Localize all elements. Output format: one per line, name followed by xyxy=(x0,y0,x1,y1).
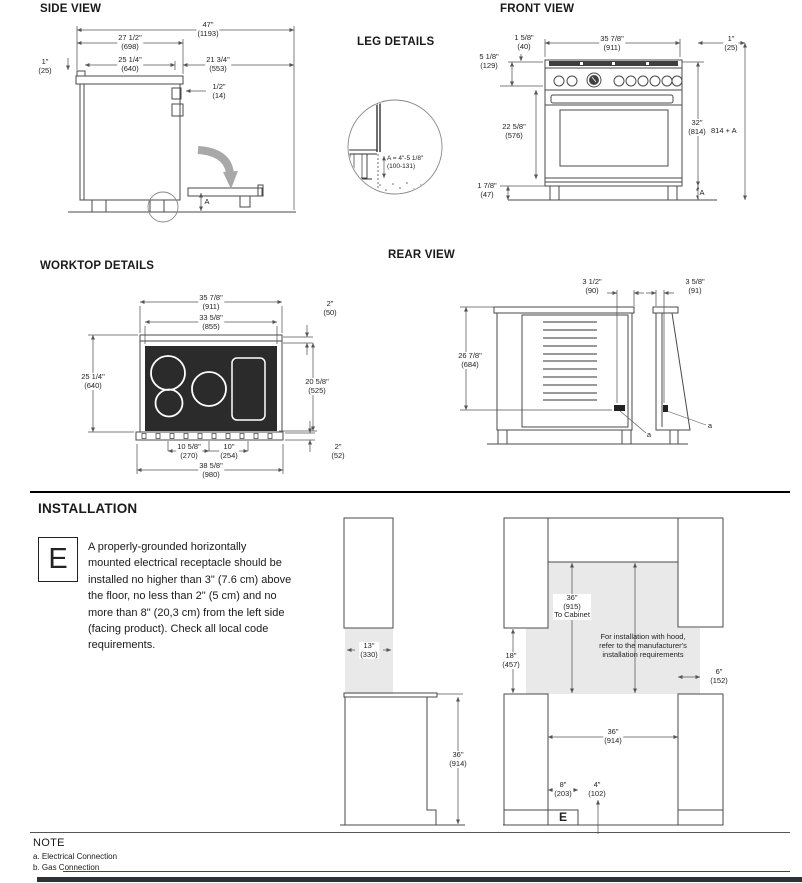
dim-worktop-depth: 25 1/4"(640) xyxy=(80,373,106,390)
dim-front-leg: 1 7/8"(47) xyxy=(476,182,497,199)
dim-depth-698: 27 1/2"(698) xyxy=(117,34,143,51)
door-swing-arrow xyxy=(198,150,230,174)
installation-text: A properly-grounded horizontally mounted… xyxy=(88,539,330,654)
connection-label-a-rear: a xyxy=(646,431,652,440)
hood-note: For installation with hood, refer to the… xyxy=(598,633,688,659)
vent-lines xyxy=(543,322,597,400)
height-plus-leg-label: 814 + A xyxy=(710,127,738,136)
dim-elec-90: 3 1/2"(90) xyxy=(581,278,602,295)
dim-burner-254: 10"(254) xyxy=(219,443,239,460)
spec-sheet: SIDE VIEW FRONT VIEW LEG DETAILS WORKTOP… xyxy=(0,0,802,883)
electrical-connection-box xyxy=(614,405,625,411)
dim-cabinet-330: 13"(330) xyxy=(359,642,379,659)
dim-worktop-911: 35 7/8"(911) xyxy=(198,294,224,311)
worktop-details-title: WORKTOP DETAILS xyxy=(40,260,154,272)
electrical-symbol-box: E xyxy=(38,537,78,582)
dim-outlet-203: 8"(203) xyxy=(553,781,573,798)
front-view-title: FRONT VIEW xyxy=(500,3,574,15)
rear-view-title: REAR VIEW xyxy=(388,249,455,261)
footer-bar xyxy=(37,877,802,882)
dim-side-offset: 1"(25) xyxy=(723,35,738,52)
left-clearance-shade xyxy=(345,628,393,694)
control-knobs xyxy=(554,73,682,87)
dim-depth-640: 25 1/4"(640) xyxy=(117,56,143,73)
rear-view-drawing xyxy=(450,275,800,450)
dim-opening-914: 36"(914) xyxy=(603,728,623,745)
side-view-title: SIDE VIEW xyxy=(40,3,101,15)
dim-counter-914: 36"(914) xyxy=(448,751,468,768)
dim-worktop-980: 38 5/8"(980) xyxy=(198,462,224,479)
dim-door-height: 22 5/8"(576) xyxy=(501,123,527,140)
dim-burner-270: 10 5/8"(270) xyxy=(176,443,202,460)
dim-457: 18"(457) xyxy=(501,652,521,669)
electrical-symbol-small: E xyxy=(558,811,568,824)
side-leg-height-label: A xyxy=(203,198,210,207)
dim-worktop-855: 33 5/8"(855) xyxy=(198,314,224,331)
dim-backguard: 5 1/8"(129) xyxy=(478,53,499,70)
dim-panel-525: 20 5/8"(525) xyxy=(304,378,330,395)
dim-gap-14: 1/2"(14) xyxy=(211,83,226,100)
leg-adjust-range: A = 4"-5 1/8"(100-131) xyxy=(386,155,424,170)
dim-back-trim: 1 5/8"(40) xyxy=(513,34,534,51)
electrical-symbol: E xyxy=(48,543,67,576)
leg-details-drawing xyxy=(322,95,472,200)
note-title: NOTE xyxy=(33,837,65,849)
dim-152: 6"(152) xyxy=(709,668,729,685)
installation-title: INSTALLATION xyxy=(38,501,137,516)
dim-rim-50: 2"(50) xyxy=(322,300,337,317)
dim-door-553: 21 3/4"(553) xyxy=(205,56,231,73)
leg-details-title: LEG DETAILS xyxy=(357,36,434,48)
dim-to-cabinet-915: 36"(915)To Cabinet xyxy=(553,594,591,620)
installation-divider xyxy=(30,491,790,493)
leg-callout-circle xyxy=(148,192,178,222)
connection-label-a-side: a xyxy=(707,422,713,431)
dim-height-814: 32"(814) xyxy=(687,119,707,136)
dim-rear-height-684: 26 7/8"(684) xyxy=(457,352,483,369)
front-view-drawing xyxy=(470,30,802,210)
dim-base-52: 2"(52) xyxy=(330,443,345,460)
footer-thin-line xyxy=(63,871,790,872)
note-divider xyxy=(30,832,790,833)
note-item-a: a. Electrical Connection xyxy=(33,852,117,861)
dim-back-offset: 1"(25) xyxy=(37,58,52,75)
front-leg-height-label: A xyxy=(698,189,705,198)
dim-total-depth: 47"(1193) xyxy=(196,21,219,38)
dim-side-91: 3 5/8"(91) xyxy=(684,278,705,295)
dim-gas-102: 4"(102) xyxy=(587,781,607,798)
clearance-shade xyxy=(526,562,700,694)
dim-front-width: 35 7/8"(911) xyxy=(599,35,625,52)
side-view-drawing xyxy=(30,18,300,220)
